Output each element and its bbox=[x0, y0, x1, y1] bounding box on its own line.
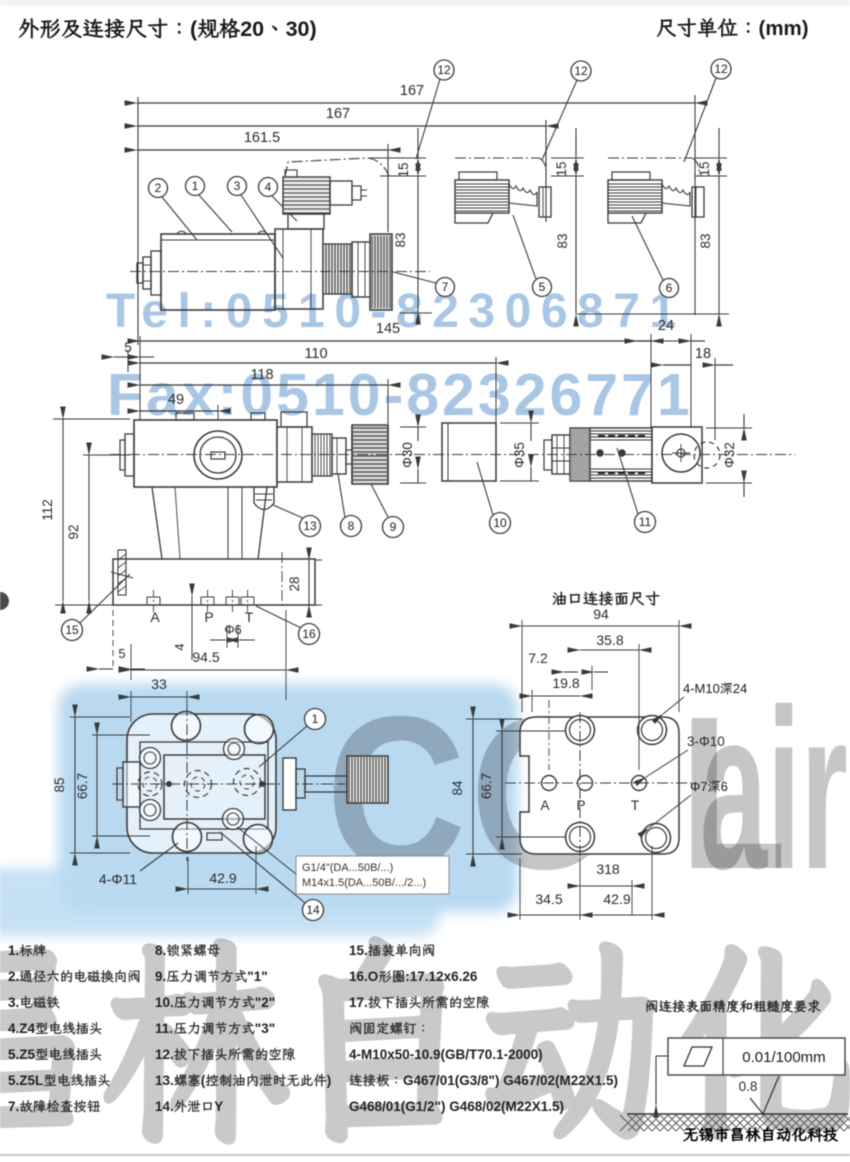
svg-text:10: 10 bbox=[493, 516, 507, 530]
svg-text:18: 18 bbox=[695, 346, 711, 362]
svg-text:7: 7 bbox=[442, 280, 449, 294]
svg-text:2: 2 bbox=[155, 181, 162, 195]
svg-text:5.Z5: 5.Z5 bbox=[8, 1047, 36, 1062]
svg-text:Fax:0510-82326771: Fax:0510-82326771 bbox=[107, 362, 693, 428]
svg-text:8.: 8. bbox=[155, 943, 166, 958]
svg-text:A: A bbox=[150, 609, 160, 625]
svg-text:92: 92 bbox=[66, 524, 81, 539]
svg-text:"1": "1" bbox=[247, 969, 267, 984]
svg-text:T: T bbox=[631, 798, 639, 813]
svg-text:35.8: 35.8 bbox=[596, 632, 623, 648]
svg-text:42.9: 42.9 bbox=[209, 870, 236, 886]
svg-text:84: 84 bbox=[450, 780, 465, 796]
svg-text:16.O: 16.O bbox=[349, 969, 378, 984]
svg-text:13.: 13. bbox=[155, 1073, 174, 1088]
svg-text:66.7: 66.7 bbox=[75, 773, 90, 799]
svg-text:"3": "3" bbox=[255, 1021, 275, 1036]
svg-text:1.: 1. bbox=[8, 943, 19, 958]
svg-text:0.01/100mm: 0.01/100mm bbox=[742, 1049, 825, 1066]
svg-text:49: 49 bbox=[168, 392, 184, 408]
svg-text:T: T bbox=[245, 609, 254, 625]
svg-text:15: 15 bbox=[65, 623, 79, 637]
svg-text:11.: 11. bbox=[155, 1021, 173, 1036]
svg-text:A: A bbox=[540, 798, 549, 813]
svg-text:15.: 15. bbox=[349, 943, 368, 958]
svg-text:P: P bbox=[204, 609, 213, 625]
svg-text:G467/01(G3/8") G467/02(M22X1.5: G467/01(G3/8") G467/02(M22X1.5) bbox=[403, 1073, 618, 1088]
svg-text:P: P bbox=[576, 798, 585, 813]
svg-text:42.9: 42.9 bbox=[603, 891, 630, 907]
svg-text:Φ7: Φ7 bbox=[690, 779, 708, 794]
svg-text:1: 1 bbox=[312, 712, 319, 726]
svg-text:83: 83 bbox=[393, 232, 408, 247]
svg-text:2.: 2. bbox=[8, 969, 19, 984]
svg-text:(: ( bbox=[201, 1073, 206, 1088]
svg-text:3.: 3. bbox=[8, 995, 19, 1010]
svg-text:14.: 14. bbox=[155, 1099, 174, 1114]
svg-text:118: 118 bbox=[250, 367, 273, 383]
svg-text:112: 112 bbox=[40, 499, 55, 521]
svg-text:12: 12 bbox=[714, 62, 728, 76]
svg-text:15: 15 bbox=[554, 161, 569, 176]
svg-text:66.7: 66.7 bbox=[479, 773, 494, 799]
svg-text:83: 83 bbox=[555, 233, 570, 248]
svg-text:94: 94 bbox=[593, 606, 609, 622]
svg-text:14: 14 bbox=[306, 903, 320, 917]
svg-text:5.Z5L: 5.Z5L bbox=[8, 1073, 43, 1088]
svg-text:19.8: 19.8 bbox=[552, 675, 579, 691]
svg-text:94.5: 94.5 bbox=[192, 649, 219, 665]
svg-text:12: 12 bbox=[574, 64, 588, 78]
svg-text:G1/4"(DA...50B/...): G1/4"(DA...50B/...) bbox=[302, 862, 393, 874]
svg-text:5: 5 bbox=[539, 280, 546, 294]
svg-text:13: 13 bbox=[303, 519, 317, 533]
svg-text:8: 8 bbox=[348, 519, 355, 533]
svg-text:12.: 12. bbox=[155, 1047, 174, 1062]
svg-text:24: 24 bbox=[658, 318, 674, 334]
svg-text:M14x1.5(DA...50B/.../2...): M14x1.5(DA...50B/.../2...) bbox=[302, 877, 426, 889]
svg-text:33: 33 bbox=[151, 676, 167, 692]
svg-text:15: 15 bbox=[396, 162, 411, 177]
svg-text:4.Z4: 4.Z4 bbox=[8, 1021, 36, 1036]
svg-text:7.2: 7.2 bbox=[528, 650, 548, 666]
svg-text:0.8: 0.8 bbox=[739, 1079, 758, 1094]
svg-text:10.: 10. bbox=[155, 995, 174, 1010]
svg-text:G468/01(G1/2") G468/02(M22X1.5: G468/01(G1/2") G468/02(M22X1.5) bbox=[349, 1099, 564, 1114]
svg-text:Y: Y bbox=[214, 1099, 223, 1114]
svg-text:4: 4 bbox=[172, 643, 187, 650]
svg-text:4-M10: 4-M10 bbox=[683, 681, 720, 696]
svg-text:7.: 7. bbox=[8, 1099, 19, 1114]
svg-text:85: 85 bbox=[52, 777, 67, 792]
svg-text:): ) bbox=[327, 1073, 332, 1088]
svg-text:4-M10x50-10.9(GB/T70.1-2000): 4-M10x50-10.9(GB/T70.1-2000) bbox=[349, 1047, 543, 1062]
svg-text:17.: 17. bbox=[349, 995, 368, 1010]
svg-text:9: 9 bbox=[390, 520, 397, 534]
svg-text:110: 110 bbox=[304, 346, 327, 362]
svg-text::17.12x6.26: :17.12x6.26 bbox=[405, 969, 478, 984]
svg-text:20: 20 bbox=[240, 17, 264, 41]
svg-text:3-Φ10: 3-Φ10 bbox=[687, 734, 725, 749]
svg-text:6: 6 bbox=[721, 779, 728, 794]
svg-text:(mm): (mm) bbox=[759, 17, 809, 40]
svg-text:3: 3 bbox=[234, 179, 241, 193]
svg-text:145: 145 bbox=[376, 321, 400, 337]
svg-text:6: 6 bbox=[666, 281, 673, 295]
svg-text:30): 30) bbox=[286, 17, 317, 41]
svg-text:"2": "2" bbox=[255, 995, 275, 1010]
svg-text:16: 16 bbox=[302, 627, 316, 641]
svg-text:167: 167 bbox=[400, 83, 424, 99]
svg-text:34.5: 34.5 bbox=[535, 891, 562, 907]
svg-text:167: 167 bbox=[326, 106, 350, 122]
svg-text:318: 318 bbox=[596, 861, 620, 877]
svg-text:24: 24 bbox=[733, 681, 747, 696]
svg-text:15: 15 bbox=[697, 161, 712, 176]
svg-text:5: 5 bbox=[118, 646, 125, 661]
svg-text:(: ( bbox=[190, 17, 198, 41]
svg-text:4-Φ11: 4-Φ11 bbox=[99, 871, 137, 887]
svg-text:11: 11 bbox=[639, 515, 652, 529]
svg-text:83: 83 bbox=[698, 233, 713, 248]
svg-text:4: 4 bbox=[265, 180, 272, 194]
svg-text:161.5: 161.5 bbox=[244, 130, 280, 146]
svg-text:9.: 9. bbox=[155, 969, 166, 984]
svg-text:12: 12 bbox=[437, 63, 451, 77]
svg-text:28: 28 bbox=[287, 576, 302, 591]
svg-text:1: 1 bbox=[192, 179, 199, 193]
